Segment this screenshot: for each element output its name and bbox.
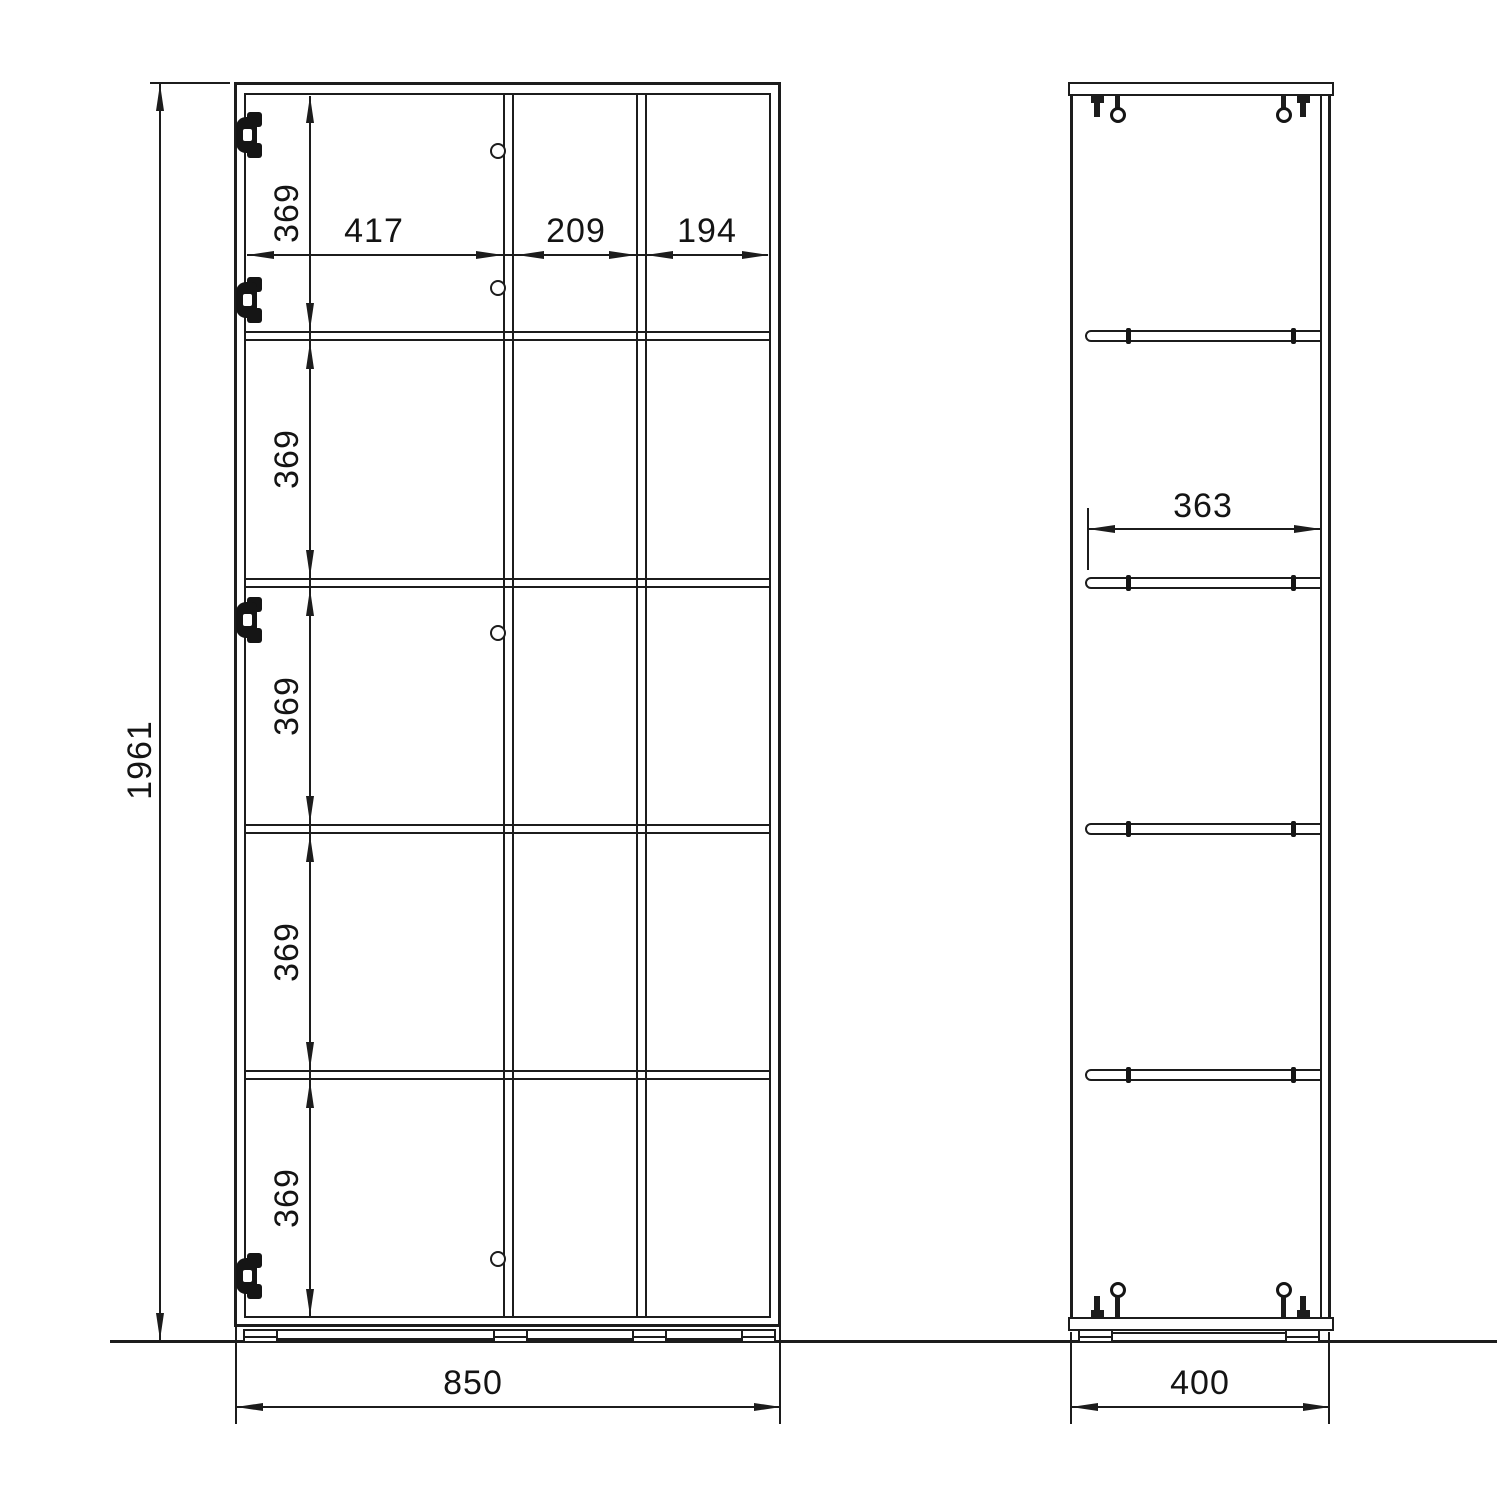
divider-line <box>512 94 514 1316</box>
divider-line <box>503 94 505 1316</box>
arrow-icon <box>476 251 503 259</box>
drill-hole-icon <box>490 625 506 641</box>
side-view-back-panel-line <box>1320 95 1322 1319</box>
dim-label-row-4: 369 <box>270 922 304 982</box>
shelf-profile <box>1085 577 1322 589</box>
cabinet-foot <box>493 1329 528 1343</box>
dim-label-row-2: 369 <box>270 429 304 489</box>
shelf-pin-icon <box>1126 1067 1131 1083</box>
dim-label-shelf-depth: 363 <box>1173 489 1233 523</box>
dim-label-compartment-1: 417 <box>344 214 404 248</box>
hinge-icon <box>236 1253 266 1299</box>
front-view-inner-wall-line <box>244 93 771 1318</box>
peg-icon <box>1300 95 1306 117</box>
cabinet-foot <box>741 1329 776 1343</box>
arrow-icon <box>1303 1403 1330 1411</box>
cabinet-foot <box>1285 1329 1320 1343</box>
arrow-icon <box>517 251 544 259</box>
extension-line <box>1087 508 1089 570</box>
cam-bolt-head-icon <box>1276 1282 1292 1298</box>
shelf-pin-icon <box>1126 821 1131 837</box>
arrow-icon <box>754 1403 781 1411</box>
shelf-pin-icon <box>1126 328 1131 344</box>
shelf-line <box>246 339 769 341</box>
shelf-line <box>246 578 769 580</box>
arrow-icon <box>609 251 636 259</box>
peg-icon <box>1297 1310 1310 1318</box>
arrow-icon <box>306 1042 314 1069</box>
arrow-icon <box>306 589 314 616</box>
peg-icon <box>1094 95 1100 117</box>
arrow-icon <box>742 251 769 259</box>
cam-bolt-head-icon <box>1276 107 1292 123</box>
arrow-icon <box>1088 525 1115 533</box>
hinge-icon <box>236 277 266 323</box>
technical-drawing-canvas: 417 209 194 369 369 369 369 369 1961 850 <box>0 0 1500 1500</box>
arrow-icon <box>306 796 314 823</box>
arrow-icon <box>236 1403 263 1411</box>
shelf-line <box>246 1078 769 1080</box>
arrow-icon <box>306 303 314 330</box>
shelf-pin-icon <box>1291 1067 1296 1083</box>
dim-label-overall-width: 850 <box>443 1366 503 1400</box>
arrow-icon <box>247 251 274 259</box>
dimension-line <box>159 84 161 1341</box>
arrow-icon <box>306 1289 314 1316</box>
hinge-icon <box>236 597 266 643</box>
drill-hole-icon <box>490 280 506 296</box>
shelf-profile <box>1085 823 1322 835</box>
cam-bolt-head-icon <box>1110 107 1126 123</box>
arrow-icon <box>156 84 164 111</box>
shelf-profile <box>1085 330 1322 342</box>
shelf-pin-icon <box>1291 821 1296 837</box>
dim-label-row-5: 369 <box>270 1168 304 1228</box>
side-view-back-panel-line <box>1328 95 1331 1319</box>
arrow-icon <box>306 96 314 123</box>
arrow-icon <box>306 550 314 577</box>
divider-line <box>645 94 647 1316</box>
dim-label-row-1: 369 <box>270 183 304 243</box>
shelf-pin-icon <box>1126 575 1131 591</box>
dim-label-row-3: 369 <box>270 676 304 736</box>
arrow-icon <box>1294 525 1321 533</box>
arrow-icon <box>156 1313 164 1340</box>
cam-bolt-head-icon <box>1110 1282 1126 1298</box>
shelf-line <box>246 331 769 333</box>
plinth-bar <box>1113 1332 1285 1342</box>
shelf-line <box>246 832 769 834</box>
divider-line <box>636 94 638 1316</box>
cabinet-foot <box>1078 1329 1113 1343</box>
hinge-icon <box>236 112 266 158</box>
dimension-line <box>1088 528 1321 530</box>
cam-bolt-icon <box>1281 1297 1286 1318</box>
shelf-profile <box>1085 1069 1322 1081</box>
drill-hole-icon <box>490 143 506 159</box>
dim-label-compartment-3: 194 <box>677 214 737 248</box>
arrow-icon <box>306 342 314 369</box>
side-view-front-edge <box>1070 95 1073 1319</box>
dimension-line <box>236 1406 781 1408</box>
arrow-icon <box>306 835 314 862</box>
arrow-icon <box>646 251 673 259</box>
shelf-line <box>246 586 769 588</box>
dimension-line <box>309 96 311 1316</box>
dimension-line <box>247 254 768 256</box>
dimension-line <box>1071 1406 1330 1408</box>
shelf-pin-icon <box>1291 575 1296 591</box>
dim-label-compartment-2: 209 <box>546 214 606 248</box>
cabinet-foot <box>243 1329 278 1343</box>
dim-label-overall-height: 1961 <box>123 720 157 800</box>
cam-bolt-icon <box>1115 1297 1120 1318</box>
arrow-icon <box>306 1081 314 1108</box>
peg-icon <box>1091 1310 1104 1318</box>
shelf-line <box>246 1070 769 1072</box>
shelf-line <box>246 824 769 826</box>
drill-hole-icon <box>490 1251 506 1267</box>
side-view-top-panel <box>1068 82 1334 96</box>
arrow-icon <box>1071 1403 1098 1411</box>
shelf-pin-icon <box>1291 328 1296 344</box>
dim-label-overall-depth: 400 <box>1170 1366 1230 1400</box>
cabinet-foot <box>632 1329 667 1343</box>
